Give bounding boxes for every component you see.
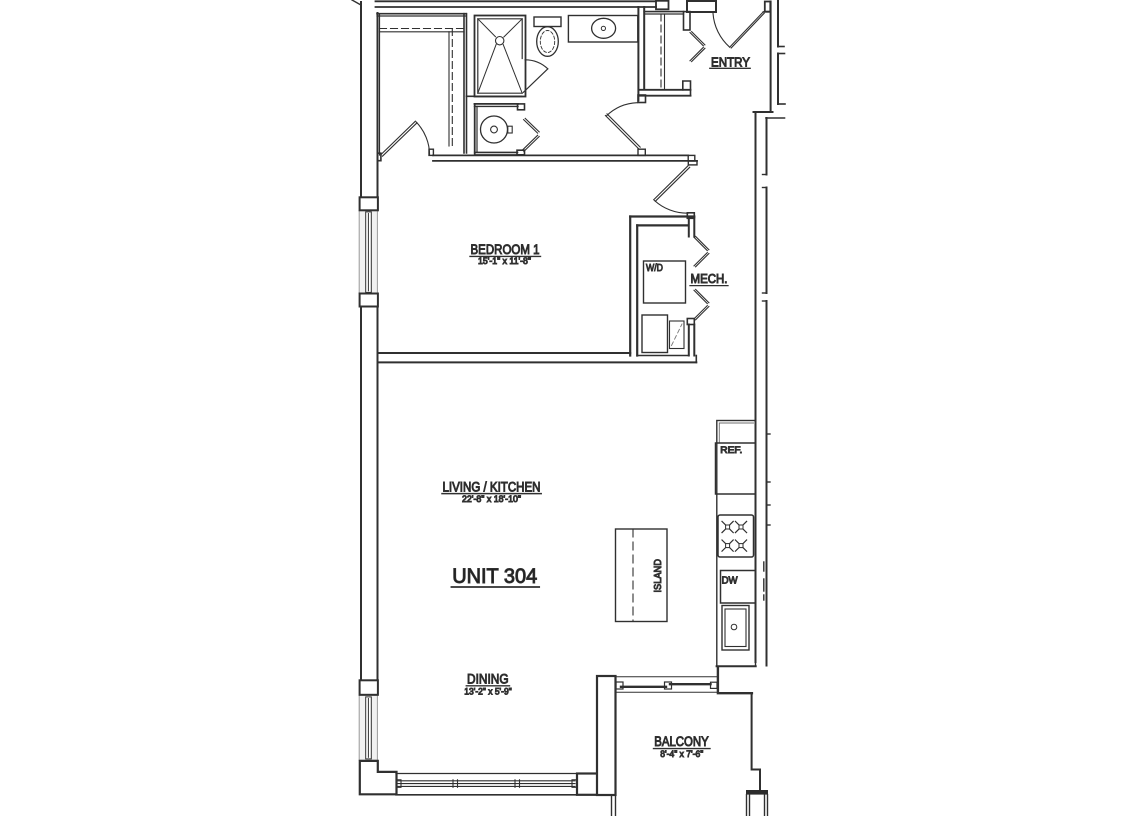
svg-text:22'-8" x 18'-10": 22'-8" x 18'-10" [462, 494, 521, 504]
svg-text:W/D: W/D [646, 262, 663, 274]
svg-text:MECH.: MECH. [691, 272, 728, 286]
svg-text:ENTRY: ENTRY [711, 55, 750, 70]
svg-text:15'-1" x 11'-8": 15'-1" x 11'-8" [478, 256, 531, 266]
svg-text:DINING: DINING [467, 672, 509, 687]
svg-text:13'-2" x 5'-9": 13'-2" x 5'-9" [464, 687, 512, 697]
svg-text:UNIT 304: UNIT 304 [452, 565, 537, 588]
svg-text:REF.: REF. [720, 445, 742, 456]
svg-text:ISLAND: ISLAND [652, 559, 664, 593]
svg-text:DW: DW [722, 575, 739, 586]
svg-text:BEDROOM 1: BEDROOM 1 [471, 241, 540, 257]
svg-text:LIVING / KITCHEN: LIVING / KITCHEN [443, 479, 541, 494]
svg-text:BALCONY: BALCONY [654, 734, 709, 749]
svg-text:8'-4" x 7'-6": 8'-4" x 7'-6" [660, 749, 703, 759]
